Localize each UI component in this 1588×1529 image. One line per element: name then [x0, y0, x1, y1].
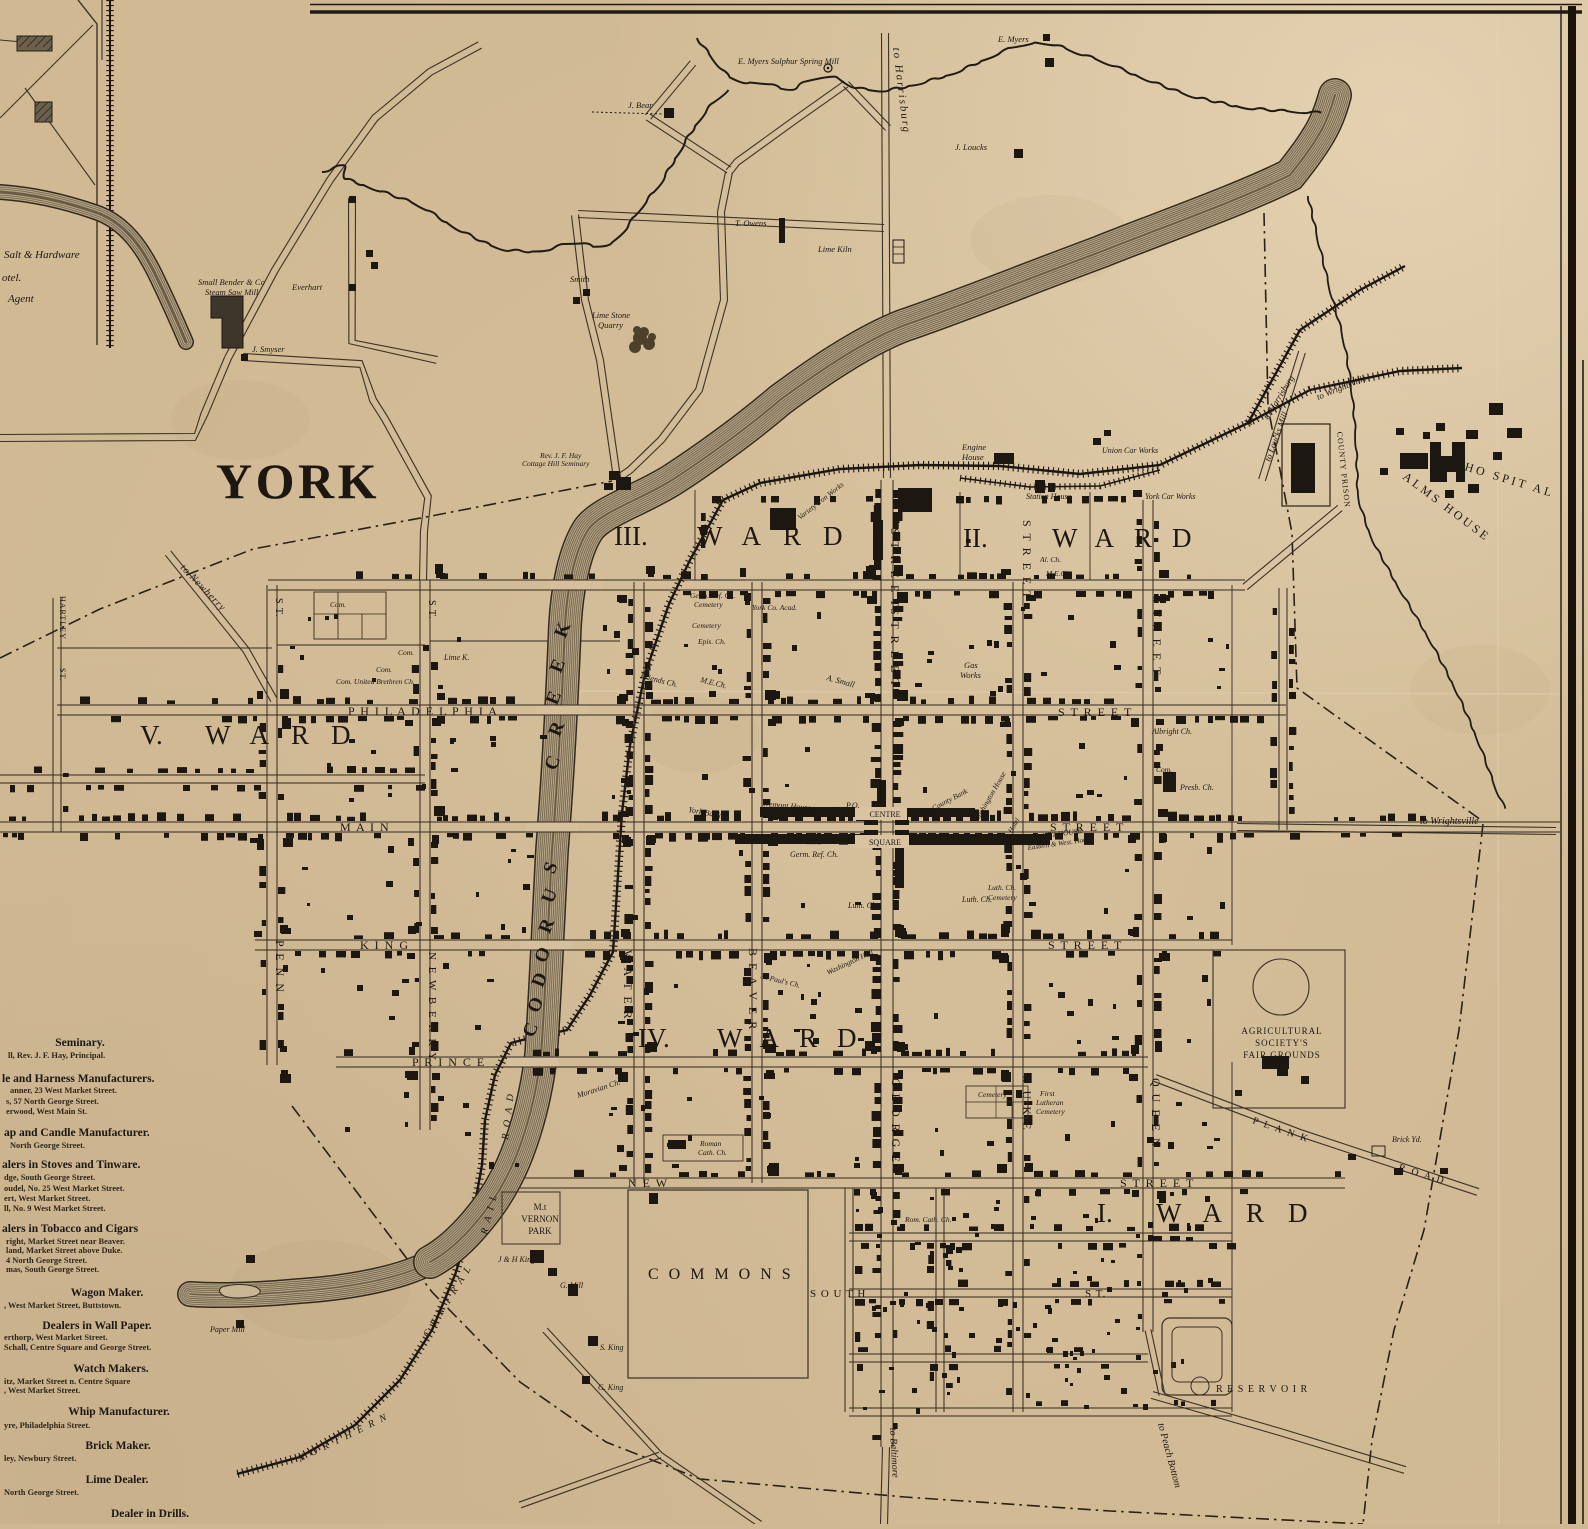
svg-text:S O U T H: S O U T H — [810, 1288, 866, 1300]
svg-text:Station House: Station House — [1026, 492, 1072, 501]
svg-text:Com. United Brethren Ch.: Com. United Brethren Ch. — [336, 677, 415, 686]
svg-text:anner, 23 West Market Street.: anner, 23 West Market Street. — [10, 1086, 117, 1095]
svg-text:Com.: Com. — [398, 648, 414, 657]
svg-text:WARD: WARD — [717, 1023, 877, 1053]
svg-text:ap and Candle Manufacturer.: ap and Candle Manufacturer. — [4, 1127, 150, 1139]
svg-text:J. Smyser: J. Smyser — [252, 344, 285, 354]
svg-text:Lime Kiln: Lime Kiln — [817, 244, 852, 254]
svg-text:York Co. Acad.: York Co. Acad. — [752, 603, 797, 612]
svg-text:WARD: WARD — [697, 521, 865, 551]
svg-text:K I N G: K I N G — [360, 938, 410, 952]
svg-text:to Wrightsville: to Wrightsville — [1420, 816, 1479, 827]
svg-text:ley, Newbury Street.: ley, Newbury Street. — [4, 1454, 76, 1463]
svg-text:VERNON: VERNON — [521, 1214, 559, 1224]
svg-text:alers in Tobacco and Cigars: alers in Tobacco and Cigars — [2, 1223, 139, 1235]
svg-text:Gas: Gas — [964, 660, 978, 670]
svg-text:Germ. Ref. Ch.: Germ. Ref. Ch. — [790, 850, 838, 859]
svg-text:IV.: IV. — [638, 1023, 670, 1053]
svg-text:Cemetery: Cemetery — [978, 1090, 1007, 1099]
svg-text:Steam Saw Mill: Steam Saw Mill — [205, 287, 259, 297]
svg-text:Wagon Maker.: Wagon Maker. — [71, 1287, 144, 1299]
svg-text:M A I N: M A I N — [340, 820, 390, 834]
svg-text:Engine: Engine — [961, 442, 986, 452]
svg-text:N E W: N E W — [628, 1176, 669, 1190]
svg-text:P.O.: P.O. — [845, 801, 860, 810]
svg-text:Al. Ch.: Al. Ch. — [1039, 555, 1061, 564]
svg-text:SOCIETY'S: SOCIETY'S — [1255, 1038, 1309, 1048]
svg-text:Lime Stone: Lime Stone — [591, 310, 630, 320]
svg-text:N E W B E R R Y: N E W B E R R Y — [426, 952, 438, 1062]
svg-text:Dealers in Wall Paper.: Dealers in Wall Paper. — [42, 1320, 151, 1332]
svg-text:Cemetery: Cemetery — [988, 893, 1017, 902]
svg-text:Salt & Hardware: Salt & Hardware — [4, 249, 80, 261]
svg-text:Quarry: Quarry — [598, 320, 623, 330]
svg-text:W A T E R: W A T E R — [621, 950, 635, 1021]
svg-text:Whip Manufacturer.: Whip Manufacturer. — [68, 1406, 170, 1418]
svg-text:II.: II. — [963, 523, 988, 553]
svg-text:le and Harness Manufacturers.: le and Harness Manufacturers. — [2, 1073, 155, 1085]
svg-text:SQUARE: SQUARE — [869, 838, 901, 847]
svg-text:M.E.Ch.: M.E.Ch. — [1045, 569, 1071, 578]
svg-text:Cemetery: Cemetery — [694, 600, 723, 609]
svg-text:, West Market Street, Buttstow: , West Market Street, Buttstown. — [4, 1301, 121, 1310]
svg-text:Everhart: Everhart — [291, 282, 323, 292]
svg-text:J & H King: J & H King — [498, 1255, 535, 1264]
svg-text:Lime Dealer.: Lime Dealer. — [86, 1474, 149, 1486]
svg-text:yre, Philadelphia Street.: yre, Philadelphia Street. — [4, 1421, 90, 1430]
svg-text:S T R E E T: S T R E E T — [888, 528, 902, 608]
svg-text:S T.: S T. — [273, 598, 284, 618]
svg-text:Cottage Hill Seminary: Cottage Hill Seminary — [522, 459, 590, 468]
svg-text:oudel, No. 25 West Market Stre: oudel, No. 25 West Market Street. — [4, 1184, 125, 1193]
svg-text:ST.: ST. — [58, 668, 67, 682]
svg-text:Brick Maker.: Brick Maker. — [85, 1440, 150, 1452]
svg-text:S T R E E T: S T R E E T — [1058, 705, 1133, 719]
svg-text:dge, South George Street.: dge, South George Street. — [4, 1173, 95, 1182]
svg-text:York Car Works: York Car Works — [1145, 492, 1196, 501]
svg-text:4 North George Street.: 4 North George Street. — [6, 1256, 87, 1265]
svg-text:WARD: WARD — [1052, 523, 1212, 553]
svg-text:Cemetery: Cemetery — [692, 621, 721, 630]
svg-text:otel.: otel. — [2, 272, 21, 284]
svg-text:G E O R G E: G E O R G E — [889, 1078, 903, 1164]
svg-text:s, 57 North George Street.: s, 57 North George Street. — [6, 1097, 99, 1106]
svg-text:ll, Rev. J. F. Hay, Principal.: ll, Rev. J. F. Hay, Principal. — [8, 1051, 105, 1060]
svg-text:North George Street.: North George Street. — [4, 1488, 79, 1497]
svg-text:Roman: Roman — [699, 1139, 721, 1148]
svg-text:Watch Makers.: Watch Makers. — [73, 1363, 149, 1375]
svg-text:Small Bender & Co: Small Bender & Co — [198, 277, 265, 287]
svg-text:Schall, Centre Square and Geor: Schall, Centre Square and George Street. — [4, 1343, 151, 1352]
svg-text:Com.: Com. — [330, 600, 346, 609]
svg-text:Brick Yd.: Brick Yd. — [1392, 1135, 1422, 1144]
svg-text:PARK: PARK — [528, 1226, 552, 1236]
svg-text:S T R E E T: S T R E E T — [1020, 520, 1034, 600]
svg-text:B E A V E R: B E A V E R — [746, 948, 760, 1031]
svg-text:Dealer in Drills.: Dealer in Drills. — [111, 1508, 189, 1520]
svg-text:S T R E E T: S T R E E T — [1150, 596, 1164, 676]
svg-text:ert, West Market Street.: ert, West Market Street. — [4, 1194, 90, 1203]
svg-text:WARD: WARD — [1156, 1198, 1332, 1228]
svg-text:Cath. Ch.: Cath. Ch. — [698, 1148, 727, 1157]
svg-text:S T R E E T: S T R E E T — [1120, 1176, 1195, 1190]
svg-text:land, Market Street above Duke: land, Market Street above Duke. — [6, 1246, 123, 1255]
svg-text:R E S E R V O I R: R E S E R V O I R — [1216, 1384, 1308, 1395]
svg-text:Albright Ch.: Albright Ch. — [1151, 727, 1192, 736]
svg-text:J. Bear: J. Bear — [628, 100, 653, 110]
svg-text:erwood, West Main St.: erwood, West Main St. — [6, 1107, 87, 1116]
svg-text:S T R E E T: S T R E E T — [888, 608, 902, 688]
svg-text:Presb. Ch.: Presb. Ch. — [1179, 783, 1214, 792]
svg-text:alers in Stoves and Tinware.: alers in Stoves and Tinware. — [2, 1159, 140, 1171]
svg-text:Smith: Smith — [570, 274, 589, 284]
svg-text:D U K E: D U K E — [1020, 1075, 1034, 1131]
svg-text:G. King: G. King — [598, 1383, 623, 1392]
svg-text:S. King: S. King — [600, 1343, 624, 1352]
svg-text:S T.: S T. — [426, 600, 437, 620]
svg-text:S T R E E T: S T R E E T — [1048, 938, 1123, 952]
svg-text:right, Market Street near Beav: right, Market Street near Beaver. — [6, 1237, 125, 1246]
svg-text:AGRICULTURAL: AGRICULTURAL — [1241, 1026, 1322, 1036]
svg-text:Seminary.: Seminary. — [55, 1037, 105, 1049]
svg-text:Q U E E N: Q U E E N — [1149, 1078, 1163, 1149]
svg-text:Germ. Ref. Ch.: Germ. Ref. Ch. — [690, 591, 735, 600]
svg-text:V.: V. — [140, 720, 163, 750]
svg-text:III.: III. — [614, 521, 648, 551]
svg-text:Lime K.: Lime K. — [443, 653, 469, 662]
svg-text:erthorp, West Market Street.: erthorp, West Market Street. — [4, 1333, 108, 1342]
svg-text:T. Owens: T. Owens — [735, 218, 767, 228]
svg-text:North George Street.: North George Street. — [10, 1141, 85, 1150]
svg-text:Rom. Cath. Ch.: Rom. Cath. Ch. — [904, 1215, 952, 1224]
svg-text:HARTLEY: HARTLEY — [58, 596, 67, 640]
svg-text:YORK: YORK — [216, 453, 380, 509]
svg-text:Lutheran: Lutheran — [1035, 1098, 1064, 1107]
svg-text:S T.: S T. — [1085, 1288, 1106, 1300]
svg-text:P H I L A D E L P H I A: P H I L A D E L P H I A — [348, 704, 498, 718]
svg-text:ll, No. 9 West Market Street.: ll, No. 9 West Market Street. — [4, 1204, 106, 1213]
svg-text:P R I N C E: P R I N C E — [412, 1055, 486, 1069]
svg-text:Epis. Ch.: Epis. Ch. — [697, 637, 726, 646]
svg-text:J. Loucks: J. Loucks — [955, 142, 988, 152]
svg-text:CENTRE: CENTRE — [869, 810, 900, 819]
svg-text:FAIR GROUNDS: FAIR GROUNDS — [1243, 1050, 1321, 1060]
svg-text:WARD: WARD — [205, 720, 373, 750]
svg-text:Com.: Com. — [376, 665, 392, 674]
svg-text:First: First — [1039, 1089, 1056, 1098]
svg-text:E. Myers: E. Myers — [997, 34, 1029, 44]
svg-text:, West Market Street.: , West Market Street. — [4, 1386, 80, 1395]
svg-text:Cemetery: Cemetery — [1036, 1107, 1065, 1116]
svg-text:itz, Market Street n. Centre S: itz, Market Street n. Centre Square — [4, 1377, 131, 1386]
svg-text:C O M M O N S: C O M M O N S — [648, 1266, 794, 1283]
svg-text:E. Myers Sulphur Spring Mill: E. Myers Sulphur Spring Mill — [737, 56, 839, 66]
svg-text:Luth. Ch.: Luth. Ch. — [987, 883, 1016, 892]
svg-text:mas, South George Street.: mas, South George Street. — [6, 1265, 99, 1274]
svg-text:I.: I. — [1097, 1198, 1113, 1228]
svg-text:Works: Works — [960, 670, 982, 680]
svg-text:M.t: M.t — [534, 1202, 547, 1212]
svg-text:P E N N: P E N N — [273, 940, 287, 994]
svg-text:Union Car Works: Union Car Works — [1102, 446, 1158, 455]
svg-text:Luth. Ch.: Luth. Ch. — [847, 901, 878, 910]
svg-text:Agent: Agent — [7, 293, 35, 305]
svg-text:Com.: Com. — [1156, 765, 1172, 774]
svg-text:House: House — [961, 452, 984, 462]
